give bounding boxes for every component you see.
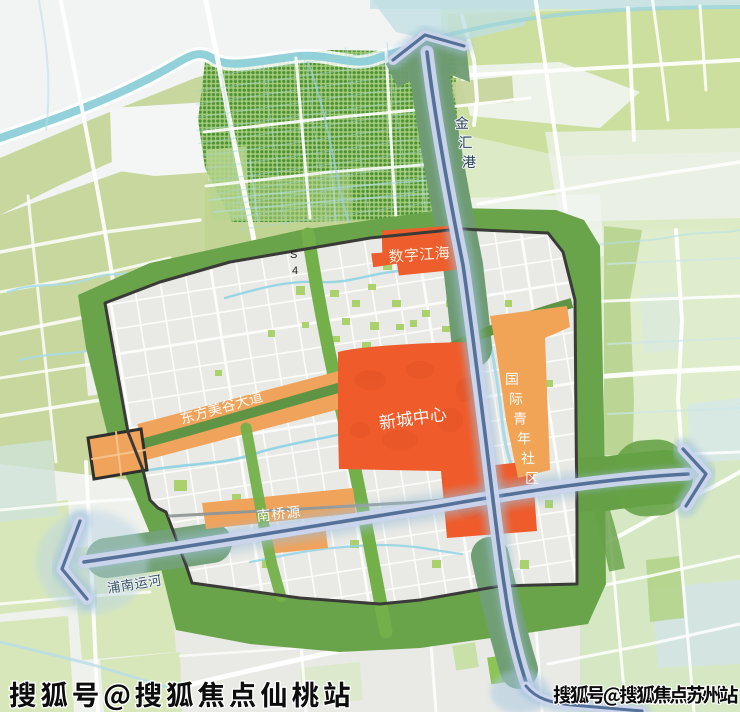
svg-text:4: 4 (292, 265, 298, 277)
svg-text:S: S (290, 249, 297, 261)
